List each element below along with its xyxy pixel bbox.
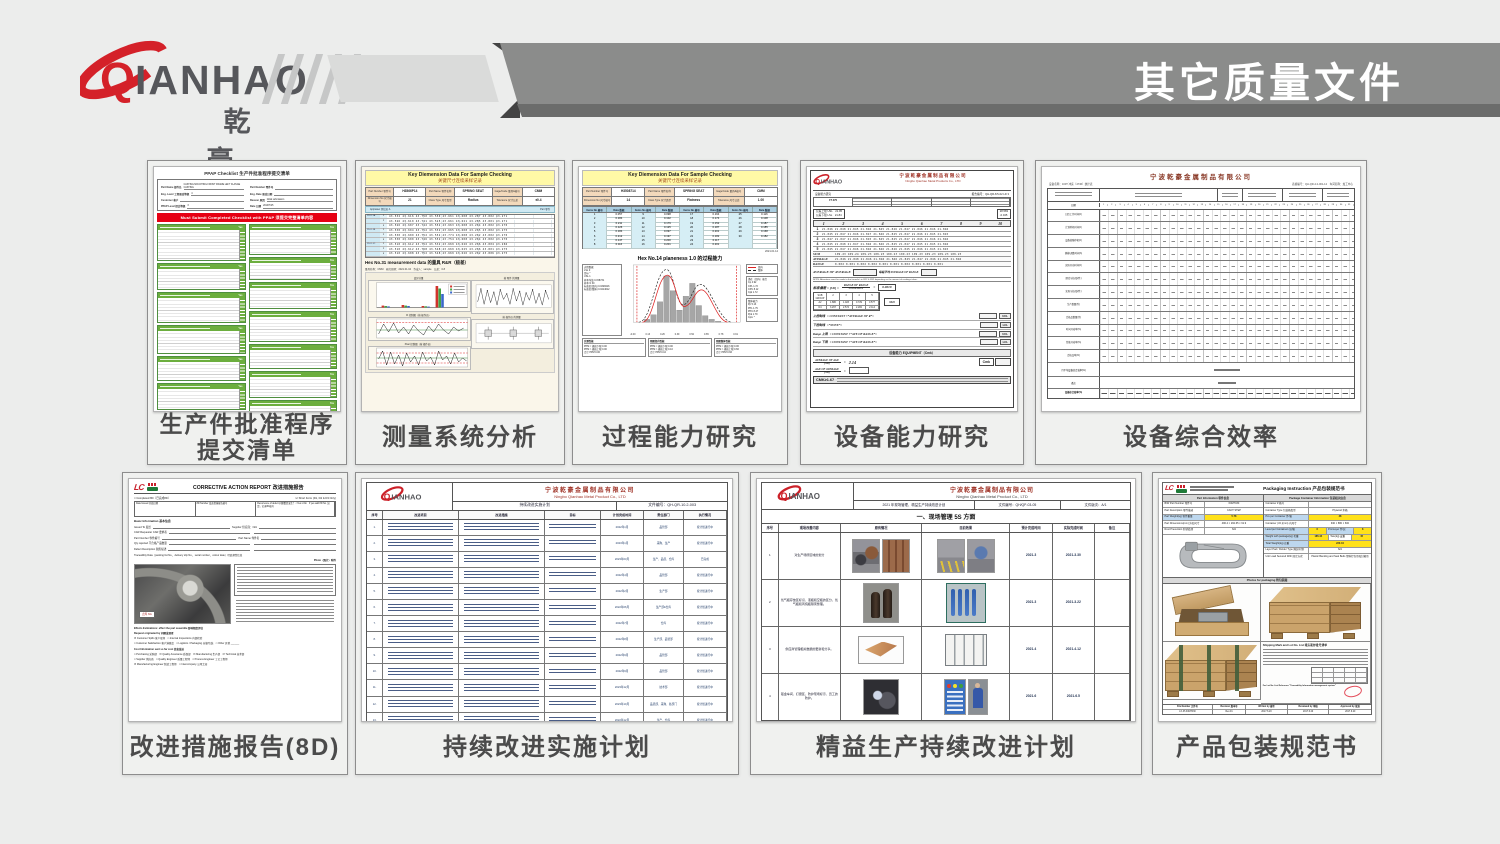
day-number: 3 — [1116, 204, 1124, 206]
yes-label: Yes — [330, 226, 334, 229]
panel-corrective-action-report: LC CORRECTIVE ACTION REPORT 改进措施报告 □ Com… — [122, 472, 348, 775]
page-title: 其它质量文件 — [1134, 49, 1404, 109]
ci-row: 10. 2022年9月 品管部 按计划进行中 — [367, 664, 727, 680]
company-lines — [1190, 485, 1236, 492]
ci-header: Q IANHAO 宁波乾豪金属制品有限公司 Ningbo Qianhao Met… — [366, 482, 728, 510]
ci-table: 序号改进项目改进措施目标计划完成时间责任部门执行情况 1. 2022年1月 品管 — [366, 510, 728, 723]
within-capability-stats: 潜在（组内）能力Cp 4.92CPL 1.72CPU 8.12Cpk 1.72 — [746, 276, 778, 296]
oee-metric-row: 理论节拍(秒/件) — [1048, 273, 1354, 286]
msa-title-block: Key Diemension Data For Sample Checking … — [365, 170, 555, 186]
day-number: 17 — [1231, 204, 1239, 206]
part-cad-drawing — [1163, 535, 1263, 577]
constants-table: SUB GROUP2345 A21.8801.0230.7290.577 D43… — [813, 292, 1011, 311]
control-limit-row: Range 上限= CONSTANT ×“AVE OF RANGE”=UCL — [813, 330, 1011, 339]
capability-data-table: 10.05790.098170.164250.116 20.184100.102… — [582, 212, 778, 248]
ci-row: 11. 2023年12月 技术部 按计划进行中 — [367, 680, 727, 696]
ppap-section: Yes — [249, 371, 338, 398]
banner-notch-bottom — [500, 98, 520, 118]
basic-info-rows: Issued To 发给Supplier 供应商：N/A CAR Request… — [134, 525, 336, 551]
lean-row-1: 1 对生产场所区域的划分 2021.3 2021.3.30 — [762, 533, 1130, 580]
day-number: 22 — [1272, 204, 1280, 206]
company-name-cn: 宁波乾豪金属制品有限公司 — [453, 483, 727, 494]
note-line: NOTE: Alterations must be made to the fo… — [813, 277, 1011, 282]
light-band-decoration — [327, 55, 498, 102]
ppap-section: Yes — [249, 400, 338, 412]
ci-row: 3. 2023年03月 生产、品质、仓库 已完成 — [367, 552, 727, 568]
sd-formula-row: 标准偏差 = [SD] = RANGE OF RANGECONSTANT = 0… — [813, 284, 1011, 291]
closed-crate-photo — [1261, 584, 1371, 642]
basic-info-row: Issued To 发给Supplier 供应商：N/A — [134, 525, 336, 529]
measurement-by-part-chart — [471, 280, 554, 314]
oee-document-thumbnail: 宁波乾豪金属制品有限公司 设备名称：160T 冲床（4736）统计表表格编号：Q… — [1041, 166, 1361, 412]
day-number: 15 — [1215, 204, 1223, 206]
msa-appraiser-band: Appraiser 测试员 APart 零件 — [365, 206, 555, 213]
before-photo-crates — [882, 539, 910, 573]
yes-label: Yes — [238, 385, 242, 388]
capability-chart-title: Hex No.14 planeness 1.0 的过程能力 — [582, 255, 778, 262]
basic-info-title: Basic Information 基本信息 — [134, 519, 336, 523]
cost-title: Cost Information sent so far cost 信息发送 — [134, 647, 336, 651]
ppap-field: Date 日期2019/7/25 — [250, 202, 333, 208]
msa-study-meta: 量具名称：CMM 研究日期：2021.01.04 作成人：sample 公差：0… — [365, 267, 555, 271]
day-number: 18 — [1239, 204, 1247, 206]
day-number: 23 — [1280, 204, 1288, 206]
ppap-section: Yes — [249, 224, 338, 255]
equipment-document-thumbnail: Q IANHAO 宁波乾豪金属制品有限公司 Ningbo Qianhao Met… — [806, 166, 1018, 412]
oee-metric-row: 实际节拍(秒/件) — [1048, 286, 1354, 299]
ci-row: 6. 2022年06月 生产部&仓库 按计划进行中 — [367, 600, 727, 616]
lot-no-mini-table — [1311, 667, 1368, 684]
day-number: 7 — [1149, 204, 1157, 206]
day-number: 1 — [1100, 204, 1108, 206]
equipment-subject: 设备能力研究 — [815, 192, 831, 196]
yes-label: Yes — [238, 294, 242, 297]
oee-merged-row-1: 月平均设备综合效率(%) — [1048, 363, 1354, 377]
ci-row: 1. 2022年1月 品管部 按计划进行中 — [367, 520, 727, 536]
ppap-section: Yes — [157, 263, 246, 290]
company-name-cn: 宁波乾豪金属制品有限公司 — [854, 483, 1130, 494]
control-limit-row: 上控制线= CONSTANT ×“AVERAGE OF R”=UCL — [813, 313, 1011, 322]
packaging-photos: Shipping Mark and Lot No. List 唛头和炉批号清单 … — [1162, 584, 1372, 705]
request-title: Request originated by 问题发现者 — [134, 631, 336, 635]
ci-rows: 1. 2022年1月 品管部 按计划进行中 2. — [367, 520, 727, 723]
ppap-section: Yes — [157, 325, 246, 354]
ppap-field: Part Name 部件名CASTING MOUNTING FRONT FRAM… — [161, 182, 244, 191]
r-chart — [368, 317, 471, 341]
oee-metric-row: 合格品数量(件) — [1048, 312, 1354, 325]
day-number: 2 — [1108, 204, 1116, 206]
open-box-photo — [1163, 584, 1261, 642]
equipment-report-no: 报告编号：QH-QR-8.5-02 LD 3 — [972, 192, 1009, 196]
lean-row-4: 4 钣金车间、打磨区、防护现场标示、员工的防护。 2021.6 2021.6.5 — [762, 674, 1130, 720]
day-number: 6 — [1141, 204, 1149, 206]
ci-row: 4. 2022年4月 品管部 按计划进行中 — [367, 568, 727, 584]
effects-line: Effects Estimations: effect the part ass… — [134, 626, 336, 630]
measurement-rows: 121.846 21.848 21.845 21.846 21.845 21.8… — [813, 227, 1011, 252]
after-photo-shelf — [945, 634, 987, 666]
svg-text:Q: Q — [780, 491, 787, 501]
ci-row: 7. 2022年7月 仓库 按计划进行中 — [367, 616, 727, 632]
expected-overall-performance: 预期整体性能PPM < 规格下限 0.06PPM > 规格上限 0.66合计 P… — [714, 338, 778, 356]
yes-label: Yes — [238, 265, 242, 268]
day-number: 27 — [1313, 204, 1321, 206]
oee-metric-row: 生产数量(件) — [1048, 299, 1354, 312]
caption-equipment: 设备能力研究 — [801, 412, 1023, 464]
photo-note: Photo（照片）附件 — [134, 558, 336, 562]
partner-logo — [147, 483, 158, 491]
ppap-section: Yes — [157, 383, 246, 410]
before-photo-copper-sheet — [858, 636, 904, 664]
request-checkboxes-2: □ Customer Satisfaction 客户满意度 □ Logistic… — [134, 641, 336, 645]
day-number: 21 — [1264, 204, 1272, 206]
yes-label: Yes — [238, 226, 242, 229]
qianhao-mini-logo: Q IANHAO — [776, 484, 840, 507]
day-number: 20 — [1256, 204, 1264, 206]
caption-oee: 设备综合效率 — [1036, 412, 1366, 464]
msa-grr-title: Hex No.31 measurement data 的量具 R&R（极差） — [365, 260, 555, 266]
lean-row-2: 2 氧气瓶存放区标识、液瓶和空瓶的区分，氧气瓶和丙烷瓶隔离整理。 2021.3 … — [762, 580, 1130, 627]
lc-logo: LC — [134, 483, 145, 492]
yes-label: Yes — [330, 402, 334, 405]
ppap-section: Yes — [249, 344, 338, 369]
day-number: 11 — [1182, 204, 1190, 206]
capability-document-thumbnail: Key Diemension Data For Sample Checking … — [578, 166, 782, 412]
measurement-column-headers: 12345678910 — [813, 220, 1011, 227]
lc-logo: LC — [1165, 485, 1173, 492]
ppap-section: Yes — [249, 311, 338, 342]
lean-document-thumbnail: Q IANHAO 宁波乾豪金属制品有限公司 Ningbo Qianhao Met… — [756, 478, 1136, 722]
caption-capability: 过程能力研究 — [573, 412, 787, 464]
caption-ppap: 生产件批准程序提交清单 — [148, 412, 346, 464]
basic-info-row: Part Number 零件编号Part Name 零件名 — [134, 536, 336, 540]
before-photo-workshop — [863, 679, 899, 715]
ppap-field: Part Number 零件号 — [250, 182, 333, 191]
oee-merged-row-2: 备注 — [1048, 377, 1354, 389]
oee-metric-row: 合格品率(%) — [1048, 350, 1354, 363]
lean-section-title: 一、现场管理 5S 方面 — [761, 509, 1131, 523]
oee-result-row: 设备综合效率(%) — [1048, 389, 1354, 398]
before-photo-cylinders — [863, 583, 899, 623]
package-container-information: Package Container Information 包装相关信息 Con… — [1264, 495, 1371, 577]
basic-info-row: Defect Description 缺陷描述 — [134, 547, 336, 551]
oee-metric-row: 时间开动率(%) — [1048, 325, 1354, 338]
caption-packaging: 产品包装规范书 — [1153, 722, 1381, 774]
caption-ci: 持续改进实施计划 — [356, 722, 738, 774]
day-number: 24 — [1288, 204, 1296, 206]
packaging-info-tables: Part Information 零件信息 BIW Part Number 零件… — [1162, 495, 1372, 578]
lean-table: 序号现场改善内容原有情况目前效果预计完成时间实际完成时间备注 1 对生产场所区域… — [761, 523, 1131, 721]
shipping-mark-block: Shipping Mark and Lot No. List 唛头和炉批号清单 … — [1261, 642, 1371, 704]
capability-date: 2021.01.14 — [582, 250, 778, 253]
ppap-title: PPAP Checklist 生产件批准程序提交清单 — [157, 171, 337, 177]
day-number: 26 — [1305, 204, 1313, 206]
photo-callout — [234, 564, 336, 624]
oee-sub-info: 设备名称：160T 冲床（4736）统计表表格编号：QH-QR-4.2-001-… — [1049, 182, 1353, 186]
slide: Q IANHAO 乾 豪 其它质量文件 PPAP Checklist 生产件批准… — [0, 0, 1500, 844]
capability-chart-block: 过程数据LSL 0目标 *USL 1样本均值 0.158731样本 N 30标准… — [582, 264, 778, 337]
oee-metric-row: 设备故障停机(h) — [1048, 235, 1354, 248]
yes-label: Yes — [238, 327, 242, 330]
ci-doc-no: 文件编号：QH-QR-10.2-003 — [617, 502, 727, 510]
yes-label: Yes — [330, 313, 334, 316]
cost-checkboxes-3: ☑ Manufacturing Engineer 制造工程师 □ Interco… — [134, 662, 336, 666]
ppap-section: Yes — [157, 292, 246, 323]
msa-grr-charts: 变异分量 R 控制图（按 操作员） — [365, 272, 555, 373]
after-photo-equipment — [967, 539, 995, 573]
svg-text:Q: Q — [815, 179, 820, 185]
partner-logo — [1176, 485, 1187, 493]
ppap-section: Yes — [249, 282, 338, 309]
after-photo-worker — [968, 679, 988, 715]
panel-oee: 宁波乾豪金属制品有限公司 设备名称：160T 冲床（4736）统计表表格编号：Q… — [1035, 160, 1367, 465]
day-number: 12 — [1190, 204, 1198, 206]
8d-header-grid: Date Issued 开始日期8D Number 改进措施报告编号Recurr… — [134, 501, 336, 517]
day-number: 28 — [1321, 204, 1329, 206]
basic-info-row: Qty rejected 不合格产品数量 — [134, 541, 336, 545]
lean-table-head: 序号现场改善内容原有情况目前效果预计完成时间实际完成时间备注 — [762, 524, 1130, 533]
strapped-crate-photo — [1163, 642, 1261, 700]
expected-within-performance: 预期组内性能PPM < 规格下限 0.00PPM > 规格上限 0.10合计 P… — [648, 338, 712, 356]
capability-data-row: 80.116160.201240.201 — [583, 243, 777, 247]
day-number: 25 — [1297, 204, 1305, 206]
8d-title: CORRECTIVE ACTION REPORT 改进措施报告 — [161, 484, 336, 491]
cmk-row-1: AVERAGE OF AGE[SD] =2.14 Cmk — [813, 358, 1011, 366]
cmk-value: 2.14 — [849, 360, 856, 365]
svg-text:Q: Q — [383, 492, 390, 502]
company-name-en: Ningbo Qianhao Metal Product Co., LTD — [854, 494, 1130, 501]
performance-boxes: 实测性能PPM < 规格下限 0.00PPM > 规格上限 0.00合计 PPM… — [582, 338, 778, 356]
ci-row: 9. 2022年9月 品管部 按计划进行中 — [367, 648, 727, 664]
average-of-average-row: AVERAGE OF AVERAGE每组平均 AVERAGE OF RANGE — [813, 269, 1011, 276]
cmk-row-2: AGE OF AVERAGE[SD] = — [813, 367, 1011, 374]
traceability-line: Traceability Data（packing list No.、deliv… — [134, 553, 336, 557]
basic-info-row: CAR Requester CAR 要求者 — [134, 530, 336, 534]
lean-doc-no: 文件编号：QH/QP-03-05 — [975, 501, 1061, 509]
equipment-doc-header: Q IANHAO 宁波乾豪金属制品有限公司 Ningbo Qianhao Met… — [813, 173, 1011, 191]
day-number: 8 — [1157, 204, 1165, 206]
oee-company-title: 宁波乾豪金属制品有限公司 — [1047, 171, 1355, 181]
ppap-section: Yes — [249, 257, 338, 280]
ci-table-head: 序号改进项目改进措施目标计划完成时间责任部门执行情况 — [367, 511, 727, 520]
day-number: 29 — [1329, 204, 1337, 206]
histogram-legend: 组内 整体 — [746, 264, 778, 274]
spec-limits-box: 公差上限 USL 21.95公差下限 LSL 21.84 — [813, 209, 845, 219]
part-information: Part Information 零件信息 BIW Part Number 零件… — [1163, 495, 1264, 577]
ppap-red-banner: Must Submit Completed Checklist with PPA… — [157, 213, 337, 222]
three-sd-box: 3SD — [884, 298, 900, 306]
ppap-checklist-column-right: Yes Yes Yes — [249, 224, 338, 412]
ci-row: 8. 2022年8月 生产部、品管部 按计划进行中 — [367, 632, 727, 648]
8d-form-type-row: □ Completed 8D（已完成8D）☑ Short Form (D1, D… — [134, 496, 336, 500]
overall-capability-stats: 整体能力Pp 5.13PPL 1.79PPU 8.47Ppk 1.79Cpm * — [746, 298, 778, 321]
histogram-x-ticks: -0.000.130.260.390.520.650.780.91 — [624, 333, 744, 336]
oee-table-header — [1048, 189, 1354, 202]
ci-row: 2. 2023年1月 采购、生产 按计划进行中 — [367, 536, 727, 552]
process-data-stats: 过程数据LSL 0目标 *USL 1样本均值 0.158731样本 N 30标准… — [582, 264, 622, 337]
spec-results-box: 28.583-0.045 — [997, 209, 1011, 219]
svg-text:IANHAO: IANHAO — [821, 179, 842, 185]
caption-8d: 改进措施报告(8D) — [123, 722, 347, 774]
msa-data-grid: 2101-1A143.532 43.616 43.750 43.550 43.6… — [365, 214, 555, 258]
capability-part-header-table: Part Number 零件号H3508714 Part Name 零件名称SP… — [582, 187, 778, 206]
cmk-criteria-footer: CMK≥1.67 — [813, 376, 1011, 384]
ppap-header-fields: Part Name 部件名CASTING MOUNTING FRONT FRAM… — [157, 179, 337, 211]
range-row: RANGE0.002 0.001 0.002 0.002 0.001 0.001… — [813, 262, 1011, 267]
oee-metric-row: 性能开动率(%) — [1048, 337, 1354, 350]
packaging-title: Packaging Instruction 产品包装规范书 — [1239, 486, 1369, 492]
panel-process-capability: Key Diemension Data For Sample Checking … — [572, 160, 788, 465]
packaging-document-thumbnail: LC Packaging Instruction 产品包装规范书 Part In… — [1158, 478, 1376, 722]
day-number: 9 — [1166, 204, 1174, 206]
defect-photo: 点焊 NG — [134, 564, 231, 624]
oee-metric-row: 计划停机时间(h) — [1048, 222, 1354, 235]
measurement-by-operator-boxplot — [471, 319, 554, 349]
lean-title: 2021 年现场管理、精益生产持续改进计划 — [854, 501, 975, 509]
oee-day-row: 日期 1234567891011121314151617181920212223… — [1048, 202, 1354, 210]
company-name-en: Ningbo Qianhao Metal Product Co., LTD — [453, 494, 727, 502]
ppap-field: PPAP Level 提交等级3 — [161, 202, 244, 208]
packaging-header: LC Packaging Instruction 产品包装规范书 — [1162, 482, 1372, 495]
svg-text:IANHAO: IANHAO — [391, 493, 421, 502]
oee-metric-rows: 日历工作时间(h) 计划停机时间(h) 设备故障停机(h) — [1048, 210, 1354, 364]
day-number: 10 — [1174, 204, 1182, 206]
ppap-section: Yes — [157, 224, 246, 261]
after-photo-cylinder-rack — [946, 583, 986, 623]
8d-header: LC CORRECTIVE ACTION REPORT 改进措施报告 — [134, 483, 336, 494]
day-number: 16 — [1223, 204, 1231, 206]
msa-document-thumbnail: Key Diemension Data For Sample Checking … — [361, 166, 559, 412]
ppap-document-thumbnail: PPAP Checklist 生产件批准程序提交清单 Part Name 部件名… — [153, 166, 341, 412]
lean-row-3: 3 供应商管理相关数据的更新和分享。 2021.4 2021.4.12 — [762, 627, 1130, 674]
company-name-en: Ningbo Qianhao Metal Products Co., LTD — [855, 179, 1011, 183]
capability-table-head: Items No 编号Data 数据Items No 编号Data 数据Item… — [582, 206, 778, 212]
control-limit-row: 下控制线=“NONE”=LCL — [813, 321, 1011, 330]
equipment-info-row: FT-070 — [813, 197, 1011, 207]
cost-checkboxes-2: □ Supplier 供应商 □ Quality Engineer 质量工程师 … — [134, 657, 336, 661]
cost-checkboxes-1: □ Purchasing 采购部 ☑ Quality Assurance 质保部… — [134, 652, 336, 656]
lean-doc-rev: 文件版次：A/1 — [1061, 501, 1130, 509]
panel-lean-improvement-plan: Q IANHAO 宁波乾豪金属制品有限公司 Ningbo Qianhao Met… — [750, 472, 1142, 775]
packaging-signature-row: File Number 文件号LX-PI-K0M7030 Revision 版本… — [1162, 705, 1372, 715]
ppap-section: Yes — [157, 356, 246, 381]
day-number: 30 — [1337, 204, 1345, 206]
yes-label: Yes — [238, 358, 242, 361]
day-number: 14 — [1206, 204, 1214, 206]
capability-histogram — [624, 264, 744, 329]
ci-row: 5. 2022年2月 生产部 按计划进行中 — [367, 584, 727, 600]
request-checkboxes-1: ☑ Customer Spills 客户现场 □ Internal Inspec… — [134, 636, 336, 640]
xbar-chart — [368, 346, 471, 370]
day-number: 5 — [1133, 204, 1141, 206]
ci-plan-title: 持续改进实施计划 — [453, 502, 617, 510]
photos-for-packaging-title: Photos for packaging 附包装图 — [1162, 578, 1372, 585]
after-photo-safety-sign — [944, 679, 966, 715]
day-number: 13 — [1198, 204, 1206, 206]
msa-part-header-table: Part Number 零件号H3566P14 Part Name 零件名称SP… — [365, 187, 555, 206]
oee-metric-row: 实际开动时间(h) — [1048, 261, 1354, 274]
before-photo-factory — [852, 539, 880, 573]
day-number: 19 — [1247, 204, 1255, 206]
8d-document-thumbnail: LC CORRECTIVE ACTION REPORT 改进措施报告 □ Com… — [128, 478, 342, 722]
yes-label: Yes — [330, 373, 334, 376]
ci-row: 13. 2022年12月 生产、仓库 按计划进行中 — [367, 713, 727, 722]
yes-label: Yes — [330, 284, 334, 287]
capability-title-block: Key Diemension Data For Sample Checking … — [582, 170, 778, 186]
caption-lean: 精益生产持续改进计划 — [751, 722, 1141, 774]
svg-text:Q: Q — [100, 53, 135, 104]
equipment-cmk-title: 设备能力 EQUIPMENT（Cmk） — [813, 349, 1011, 357]
oee-metric-row: 换模/调整时间(h) — [1048, 248, 1354, 261]
oee-table: 日期 1234567891011121314151617181920212223… — [1047, 188, 1355, 399]
panel-ppap-checklist: PPAP Checklist 生产件批准程序提交清单 Part Name 部件名… — [147, 160, 347, 465]
defect-photo-label: 点焊 NG — [139, 611, 155, 618]
panel-equipment-capability: Q IANHAO 宁波乾豪金属制品有限公司 Ningbo Qianhao Met… — [800, 160, 1024, 465]
day-number: 4 — [1125, 204, 1133, 206]
sd-value: 0.0019 — [878, 284, 895, 291]
msa-data-row: 343.510 43.608 43.752 43.548 43.669 43.6… — [366, 252, 554, 257]
panel-measurement-system-analysis: Key Diemension Data For Sample Checking … — [355, 160, 565, 465]
oee-metric-row: 日历工作时间(h) — [1048, 210, 1354, 223]
panel-packaging-instruction: LC Packaging Instruction 产品包装规范书 Part In… — [1152, 472, 1382, 775]
after-photo-floor-marking — [937, 539, 965, 573]
svg-text:IANHAO: IANHAO — [788, 492, 819, 501]
ppap-checklist-column-left: Yes Yes Yes — [157, 224, 246, 412]
components-of-variation-chart — [368, 280, 471, 312]
shipping-mark-details — [1263, 649, 1368, 665]
qianhao-mini-logo: Q IANHAO — [813, 173, 855, 189]
day-number: 31 — [1346, 204, 1354, 206]
ci-document-thumbnail: Q IANHAO 宁波乾豪金属制品有限公司 Ningbo Qianhao Met… — [361, 478, 733, 722]
control-limit-rows: 上控制线= CONSTANT ×“AVERAGE OF R”=UCL 下控制线=… — [813, 313, 1011, 347]
lean-header: Q IANHAO 宁波乾豪金属制品有限公司 Ningbo Qianhao Met… — [761, 482, 1131, 509]
observed-performance: 实测性能PPM < 规格下限 0.00PPM > 规格上限 0.00合计 PPM… — [582, 338, 646, 356]
ci-row: 12. 2023年10月 品质部、采购、各部门 按计划进行中 — [367, 697, 727, 713]
yes-label: Yes — [330, 346, 334, 349]
yes-label: Yes — [330, 259, 334, 262]
caption-msa: 测量系统分析 — [356, 412, 564, 464]
qianhao-mini-logo: Q IANHAO — [380, 485, 440, 507]
control-limit-row: Range 下限= CONSTANT ×“AVE OF RANGE”=LCL — [813, 338, 1011, 347]
panel-continuous-improvement-plan: Q IANHAO 宁波乾豪金属制品有限公司 Ningbo Qianhao Met… — [355, 472, 739, 775]
